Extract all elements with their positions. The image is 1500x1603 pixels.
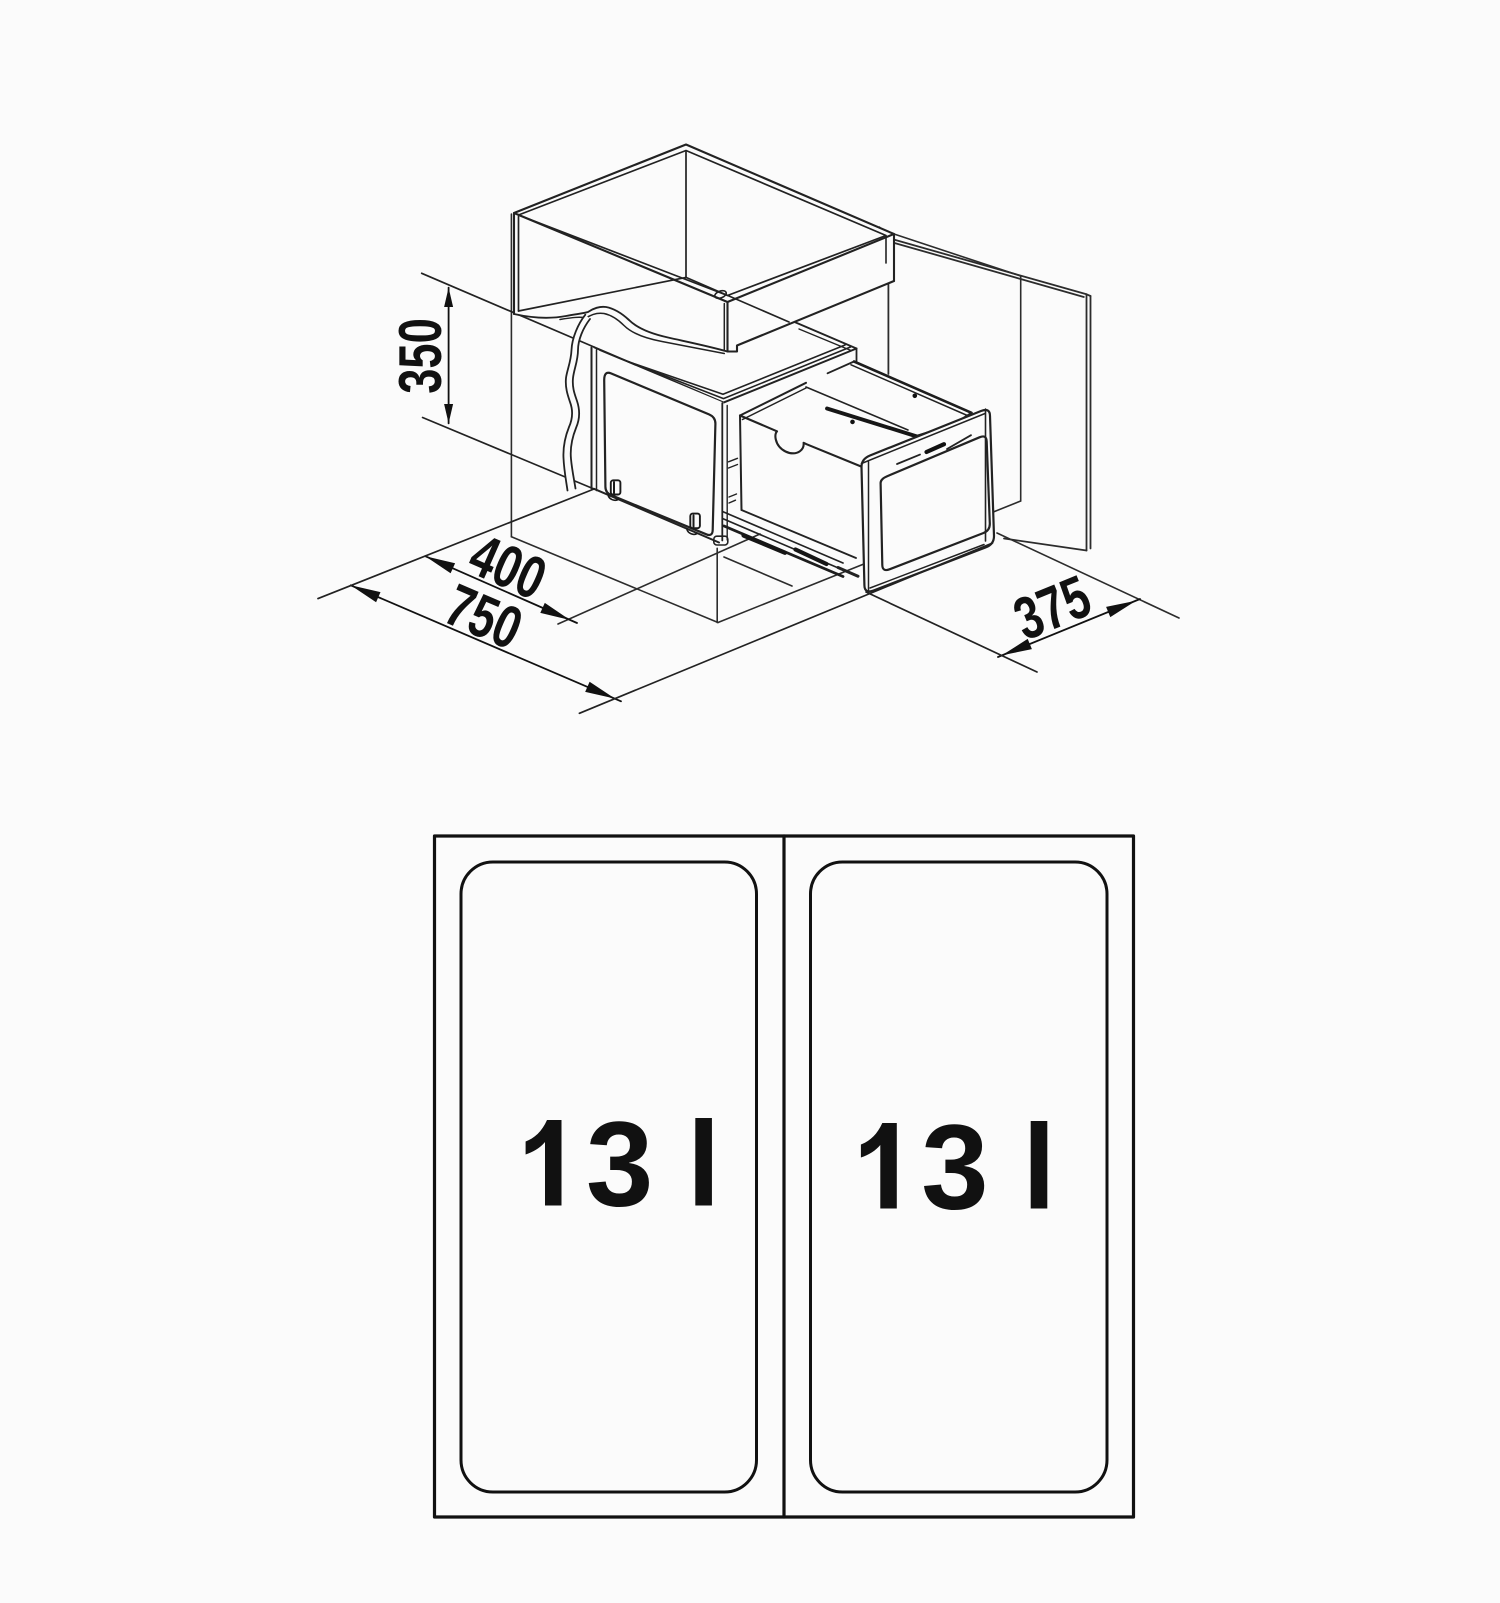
svg-text:350: 350 <box>388 318 455 394</box>
svg-text:375: 375 <box>1005 563 1100 653</box>
svg-text:3 l: 3 l <box>586 1096 721 1232</box>
svg-text:3 l: 3 l <box>921 1099 1056 1235</box>
